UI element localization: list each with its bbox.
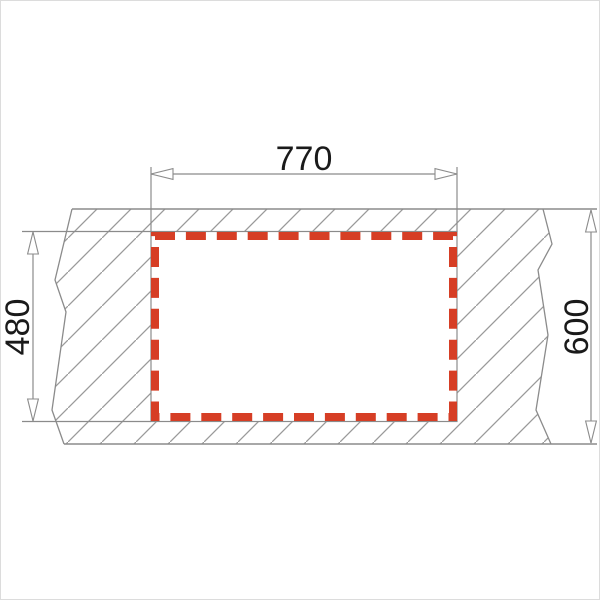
worktop-depth-label: 600 [558, 299, 596, 356]
worktop-depth-arrow-up-icon [586, 210, 597, 232]
cutout-width-label: 770 [276, 140, 333, 178]
diagram-canvas: 770 480 600 [0, 0, 600, 600]
width-arrow-left-icon [151, 169, 173, 180]
worktop-depth-arrow-down-icon [586, 421, 597, 443]
cutout-thin-outline [151, 232, 457, 422]
cutout-height-arrow-down-icon [28, 399, 39, 421]
cutout-installation-diagram: 770 480 600 [0, 0, 600, 600]
width-arrow-right-icon [435, 169, 457, 180]
cutout-red-dashed-outline [155, 236, 453, 417]
cutout-height-label: 480 [0, 299, 37, 356]
worktop-hatched-surface [52, 209, 552, 444]
cutout-height-arrow-up-icon [28, 232, 39, 254]
